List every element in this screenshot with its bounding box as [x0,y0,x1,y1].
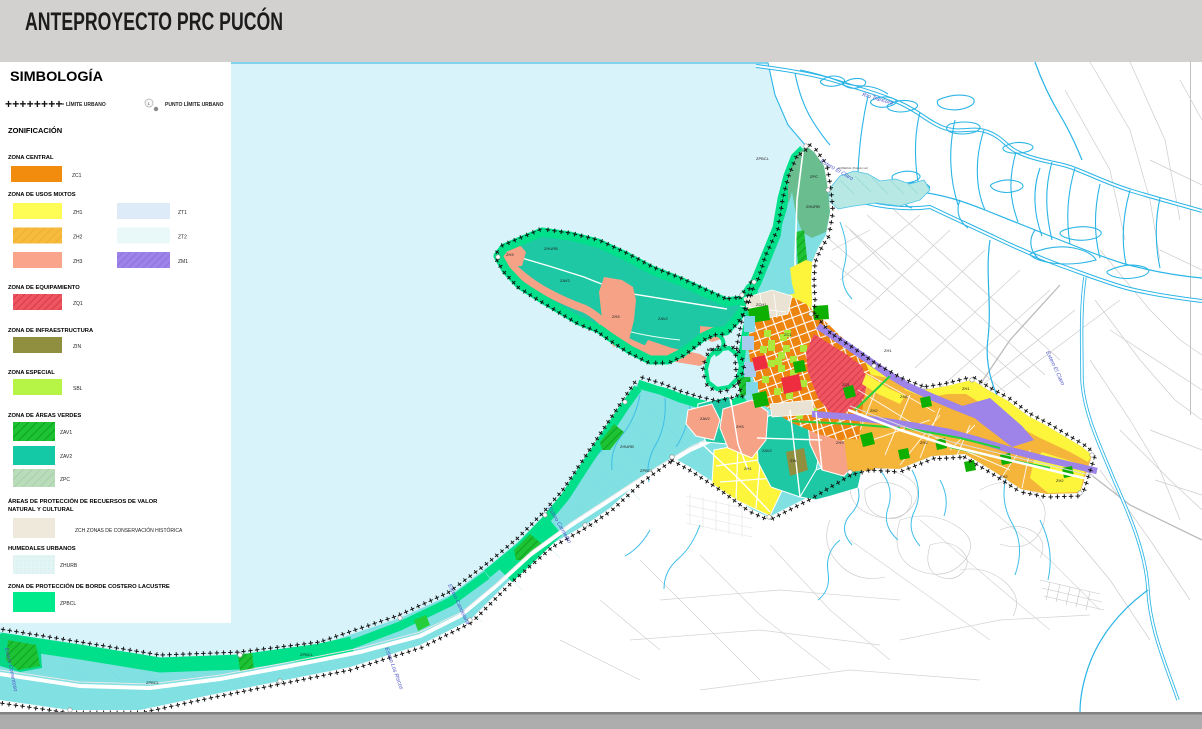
svg-text:−: − [59,99,64,109]
svg-text:ZHURB: ZHURB [60,563,78,569]
svg-text:ZC1: ZC1 [72,173,82,179]
svg-text:ZONA DE USOS MIXTOS: ZONA DE USOS MIXTOS [8,192,76,198]
svg-text:ZPBCL: ZPBCL [300,652,314,657]
svg-text:ZQ1: ZQ1 [73,301,83,307]
svg-text:ZCH1: ZCH1 [756,302,767,307]
svg-text:ZM1: ZM1 [900,394,909,399]
svg-text:ZAV2: ZAV2 [658,316,668,321]
svg-text:ZPBCL: ZPBCL [640,468,654,473]
svg-text:ZAV2: ZAV2 [560,278,570,283]
svg-text:SBL: SBL [73,386,83,392]
svg-text:ZH2: ZH2 [1056,478,1064,483]
svg-text:ZM1: ZM1 [178,259,188,265]
svg-text:ÁREAS DE PROTECCIÓN DE RECUERS: ÁREAS DE PROTECCIÓN DE RECUERSOS DE VALO… [8,497,158,505]
svg-text:ZAV2: ZAV2 [60,454,72,460]
svg-text:ZAV1: ZAV1 [60,430,72,436]
svg-text:NATURAL Y CULTURAL: NATURAL Y CULTURAL [8,507,74,513]
svg-text:ZH1: ZH1 [962,386,970,391]
svg-text:HUMEDALES URBANOS: HUMEDALES URBANOS [8,546,76,552]
svg-text:LÍMITE URBANO: LÍMITE URBANO [66,100,106,108]
svg-text:ZONA DE EQUIPAMIENTO: ZONA DE EQUIPAMIENTO [8,285,80,291]
svg-text:ZC1: ZC1 [784,332,792,337]
svg-text:ZONIFICACIÓN: ZONIFICACIÓN [8,126,62,135]
svg-text:ZH2: ZH2 [1000,474,1008,479]
svg-text:HUMEDAL (Palguin sur): HUMEDAL (Palguin sur) [838,166,868,170]
svg-text:ZH3: ZH3 [506,252,514,257]
svg-text:ZPC: ZPC [810,174,818,179]
svg-text:ZPBCL: ZPBCL [60,601,76,607]
svg-text:SIMBOLOGÍA: SIMBOLOGÍA [10,68,103,84]
svg-text:ZH2: ZH2 [870,408,878,413]
svg-text:ZH3: ZH3 [836,440,844,445]
svg-text:++++++++: ++++++++ [5,97,63,111]
svg-text:ZT1: ZT1 [178,210,187,216]
svg-text:ZHURB: ZHURB [544,246,558,251]
svg-text:ZH2: ZH2 [73,235,83,241]
svg-text:ZHURB: ZHURB [620,444,634,449]
svg-text:ZHURB: ZHURB [806,204,820,209]
svg-text:ANTEPROYECTO PRC PUCÓN: ANTEPROYECTO PRC PUCÓN [25,6,283,36]
svg-text:ZONA DE INFRAESTRUCTURA: ZONA DE INFRAESTRUCTURA [8,328,94,334]
svg-text:ZH1: ZH1 [884,348,892,353]
svg-text:ZPC: ZPC [60,477,70,483]
svg-text:ZONA DE ÁREAS VERDES: ZONA DE ÁREAS VERDES [8,412,81,419]
svg-text:ZH3: ZH3 [73,259,83,265]
svg-text:ZIN: ZIN [790,458,797,463]
svg-text:ZH3: ZH3 [612,314,620,319]
svg-text:PUNTO LÍMITE URBANO: PUNTO LÍMITE URBANO [165,100,224,108]
svg-text:ZPBCL: ZPBCL [756,156,770,161]
svg-text:ZCH ZONAS DE CONSERVACIÓN HIST: ZCH ZONAS DE CONSERVACIÓN HISTÓRICA [75,527,183,534]
svg-text:ZH3: ZH3 [736,424,744,429]
svg-text:ZONA DE PROTECCIÓN DE BORDE CO: ZONA DE PROTECCIÓN DE BORDE COSTERO LACU… [8,582,170,590]
svg-text:ZT2: ZT2 [178,235,187,241]
svg-text:ZONA CENTRAL: ZONA CENTRAL [8,155,54,161]
svg-text:MUELLE: MUELLE [707,348,722,352]
svg-text:ZAV2: ZAV2 [700,416,710,421]
svg-text:ZQ1: ZQ1 [842,382,851,387]
svg-text:ZAV2: ZAV2 [762,448,772,453]
svg-text:ZH1: ZH1 [744,466,752,471]
svg-text:ZONA ESPECIAL: ZONA ESPECIAL [8,370,55,376]
svg-text:ZPBCL: ZPBCL [146,680,160,685]
svg-text:ZH2: ZH2 [920,440,928,445]
svg-text:ZIN: ZIN [73,344,81,350]
svg-text:ZH1: ZH1 [73,210,83,216]
